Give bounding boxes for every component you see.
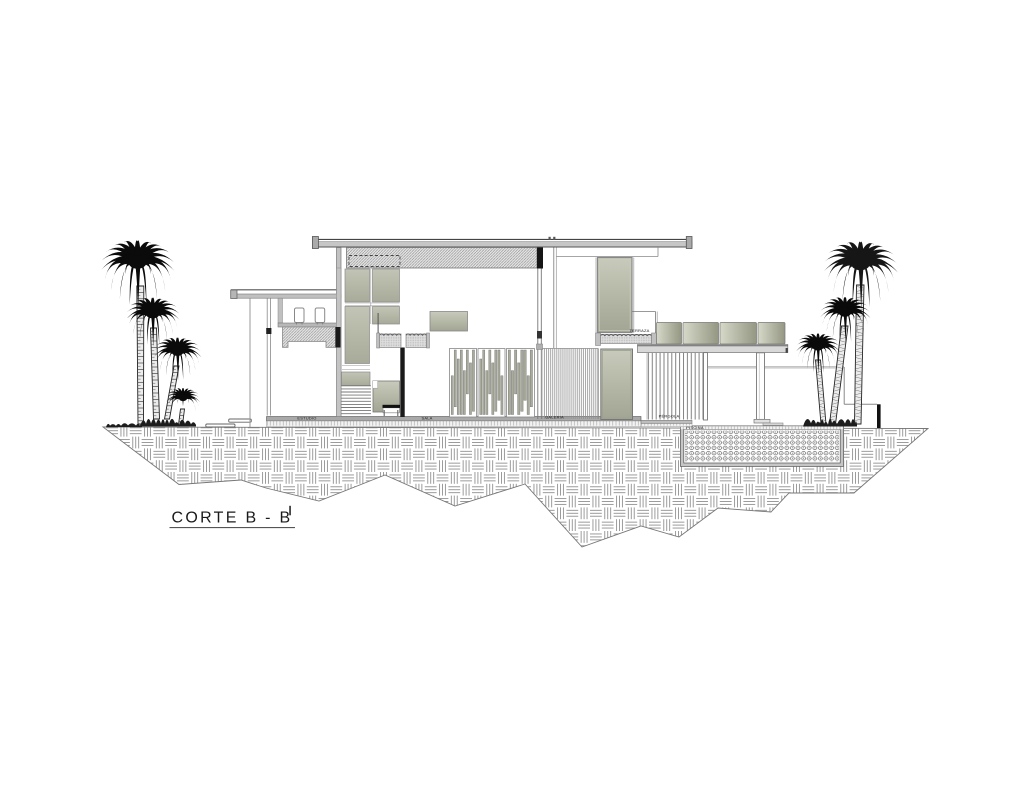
svg-text:ESTUDIO: ESTUDIO: [297, 416, 316, 421]
svg-text:PISCINA: PISCINA: [686, 425, 704, 430]
svg-text:SALA: SALA: [421, 415, 432, 420]
svg-text:CORTE B - B: CORTE B - B: [172, 510, 293, 527]
svg-text:GALERIA: GALERIA: [545, 414, 564, 419]
svg-text:PÉRGOLA: PÉRGOLA: [659, 413, 680, 418]
svg-text:TERRAZA: TERRAZA: [629, 328, 649, 333]
